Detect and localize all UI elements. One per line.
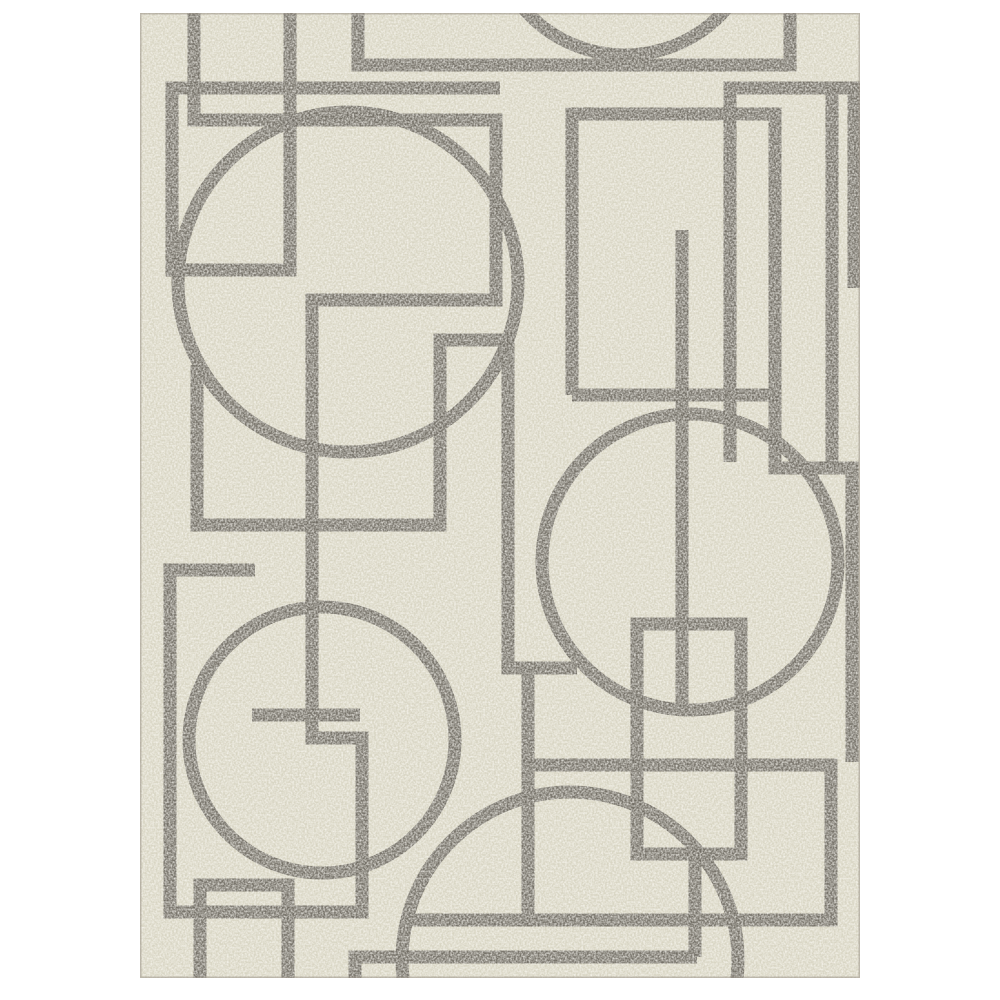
wallpaper-swatch — [0, 0, 1000, 1000]
pattern-group — [140, 0, 860, 1000]
pattern-panel — [0, 0, 1000, 1000]
wallpaper-canvas — [0, 0, 1000, 1000]
texture-speckle-dark — [140, 13, 860, 978]
